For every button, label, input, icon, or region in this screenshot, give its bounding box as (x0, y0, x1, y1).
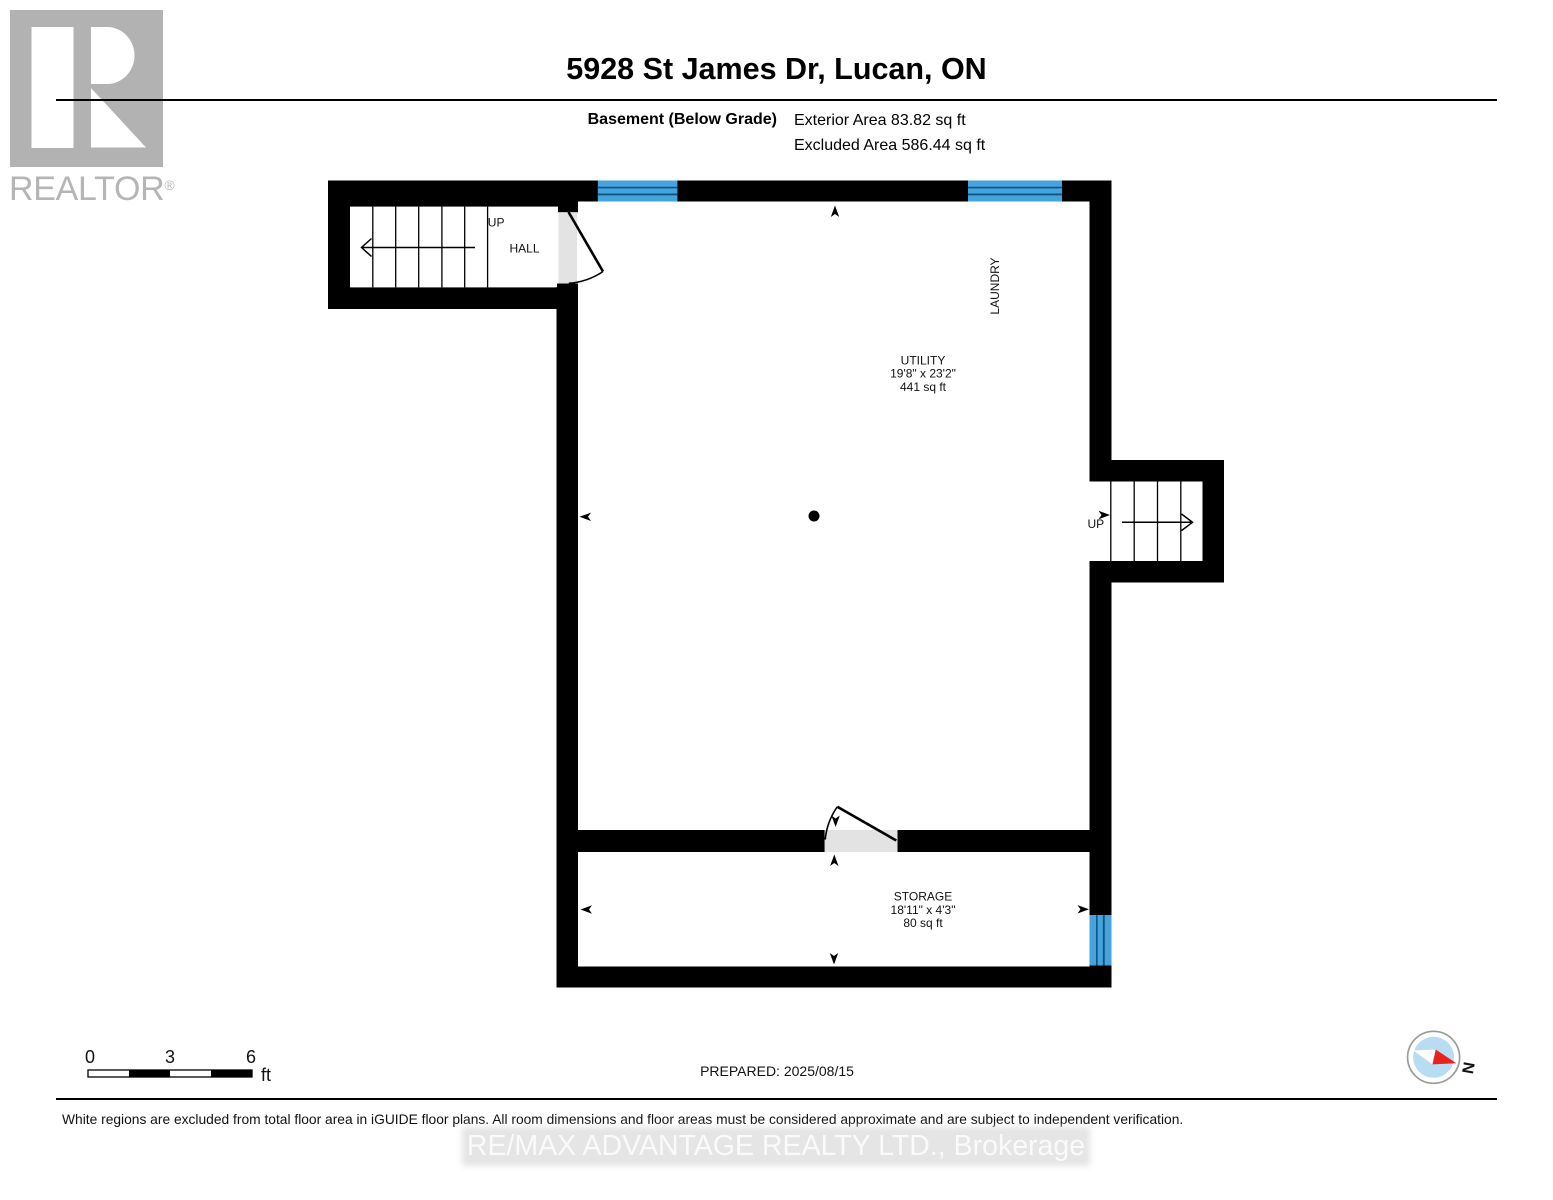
svg-text:6: 6 (246, 1047, 256, 1067)
svg-text:LAUNDRY: LAUNDRY (988, 257, 1002, 314)
svg-text:UTILITY: UTILITY (901, 353, 946, 367)
svg-text:19'8" x 23'2": 19'8" x 23'2" (890, 367, 956, 381)
svg-text:441 sq ft: 441 sq ft (900, 380, 947, 394)
svg-text:0: 0 (85, 1047, 95, 1067)
svg-text:UP: UP (488, 216, 505, 230)
svg-text:3: 3 (165, 1047, 175, 1067)
svg-text:N: N (1458, 1061, 1477, 1075)
svg-text:ft: ft (261, 1065, 271, 1085)
svg-text:80 sq ft: 80 sq ft (903, 916, 943, 930)
svg-text:HALL: HALL (509, 242, 539, 256)
svg-text:PREPARED: 2025/08/15: PREPARED: 2025/08/15 (700, 1063, 854, 1079)
svg-text:18'11" x 4'3": 18'11" x 4'3" (891, 903, 956, 917)
svg-text:UP: UP (1088, 517, 1105, 531)
svg-text:STORAGE: STORAGE (894, 889, 952, 903)
